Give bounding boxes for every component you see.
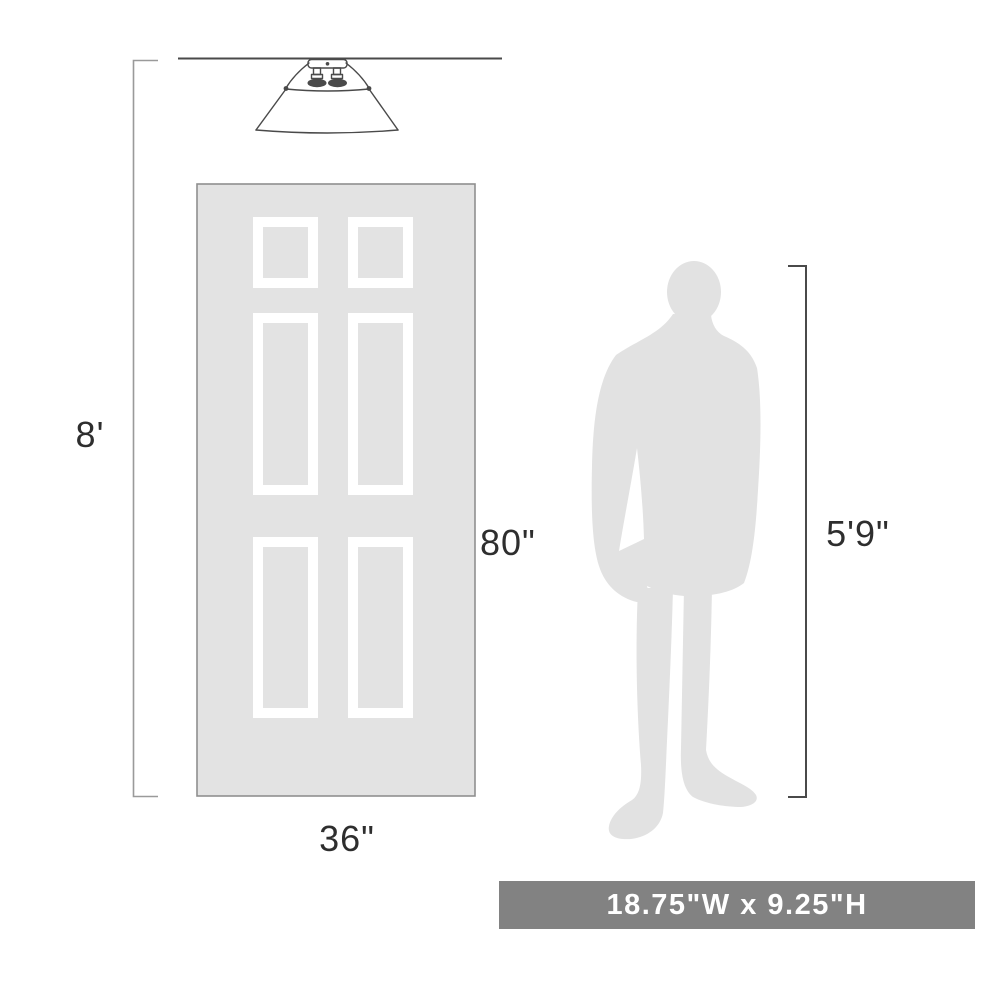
person-height-bracket — [788, 266, 806, 797]
door-icon — [197, 184, 475, 796]
door-width-label: 36" — [297, 818, 397, 860]
diagram-line-art — [0, 0, 1000, 1000]
ceiling-height-label: 8' — [55, 414, 125, 456]
size-guide-diagram: 8' 80" 36" 5'9" 18.75"W x 9.25"H — [0, 0, 1000, 1000]
ceiling-height-bracket — [134, 61, 159, 797]
person-height-label: 5'9" — [808, 513, 908, 555]
door-height-label: 80" — [480, 522, 570, 564]
person-silhouette-icon — [592, 261, 761, 839]
flush-mount-light-icon — [256, 60, 398, 134]
product-dimensions-banner: 18.75"W x 9.25"H — [499, 881, 975, 929]
product-dimensions-text: 18.75"W x 9.25"H — [606, 889, 867, 922]
